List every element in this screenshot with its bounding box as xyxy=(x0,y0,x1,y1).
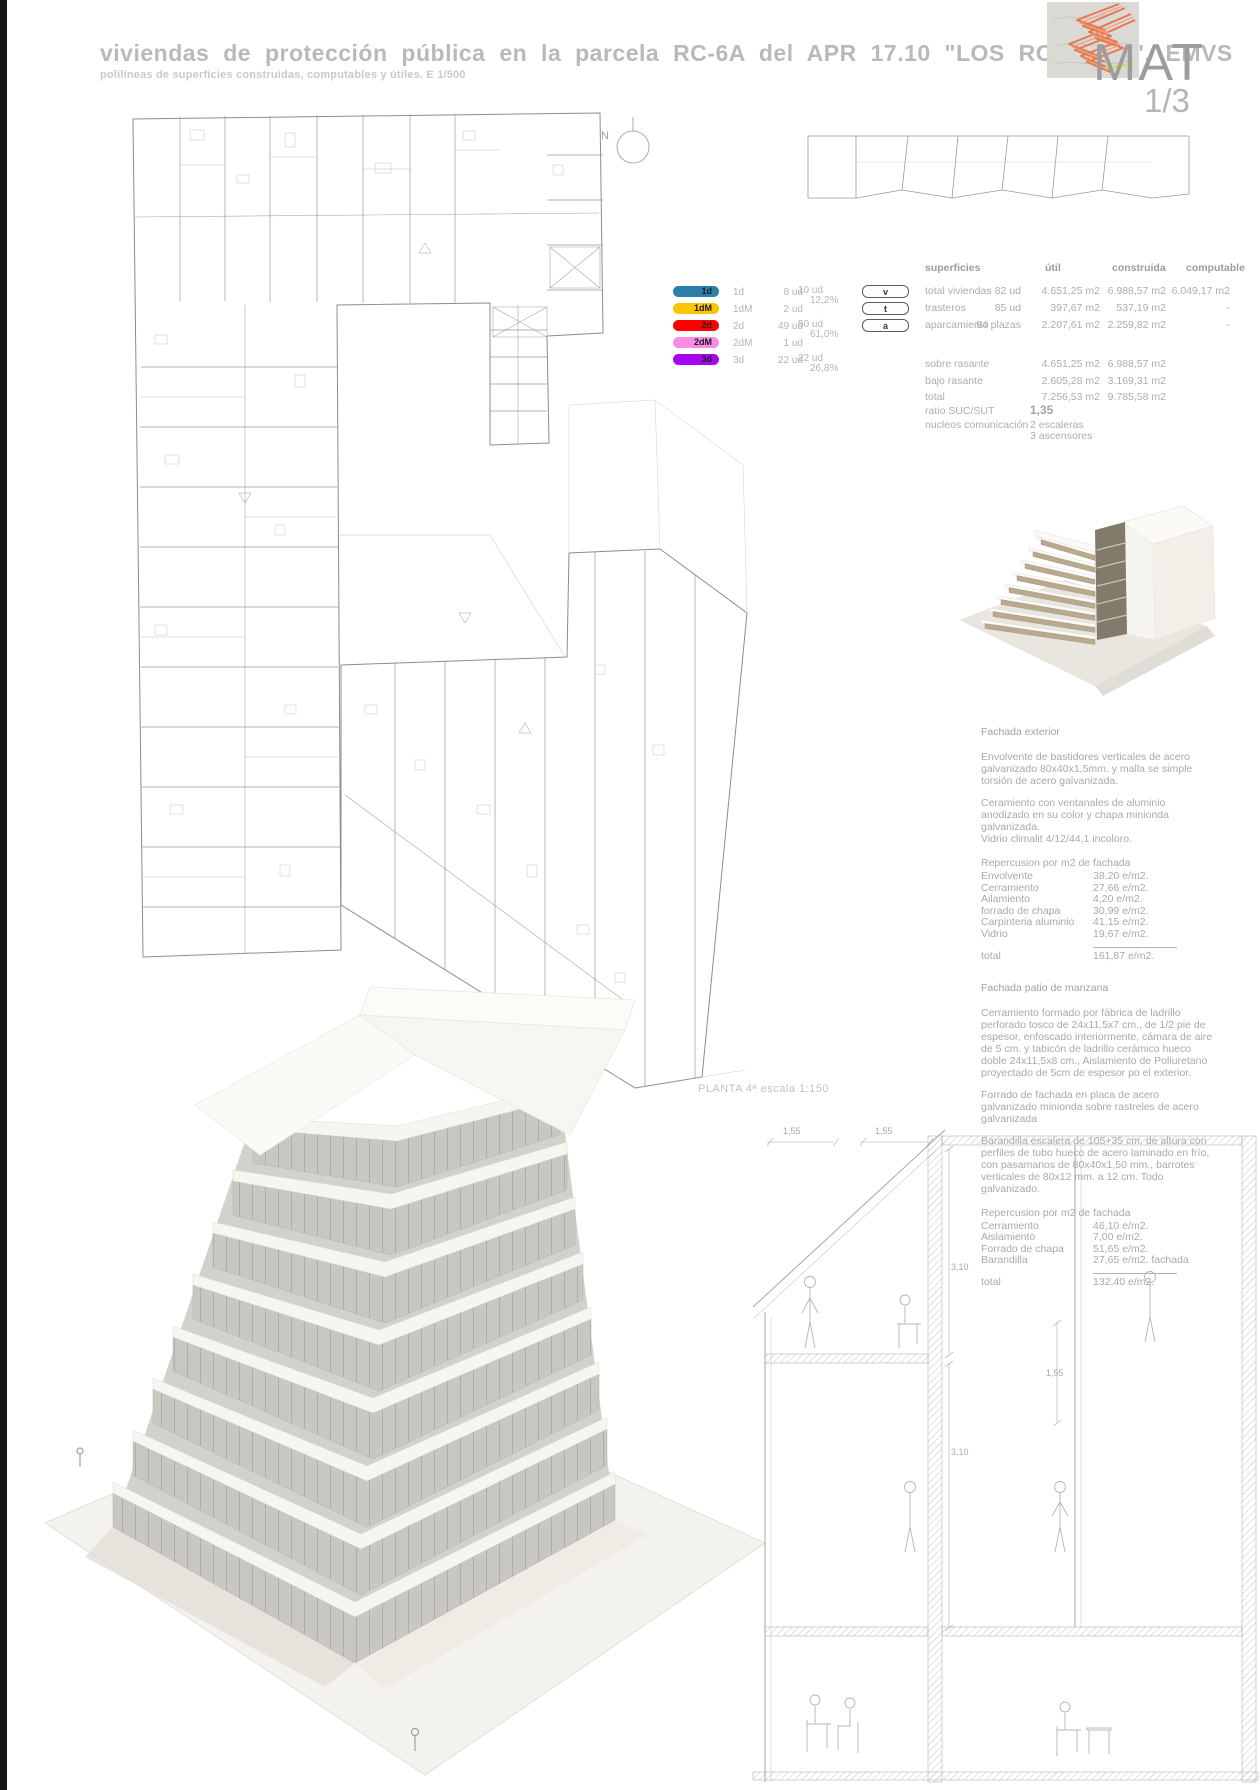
cost-row: Envolvente38,20 e/m2. xyxy=(981,871,1215,883)
row-built: 537,19 m2 xyxy=(1102,302,1166,314)
paragraph: Cerramiento formado por fábrica de ladri… xyxy=(981,1007,1215,1079)
summary-label: total xyxy=(925,391,945,403)
color-swatch-1dM: 1dM xyxy=(673,303,719,314)
sheet-number: 1/3 xyxy=(1144,82,1190,120)
dim-label: 1,55 xyxy=(1046,1368,1064,1378)
summary-built: 3.169,31 m2 xyxy=(1102,375,1166,387)
dim-label: 1,55 xyxy=(783,1126,801,1136)
model-photo-large xyxy=(25,975,825,1785)
total-row: total161,87 e/m2. xyxy=(981,950,1215,962)
legend-code: 2dM xyxy=(733,338,752,349)
row-comp: - xyxy=(1166,319,1230,331)
key-aparcamiento: a xyxy=(862,319,909,332)
paragraph: Forrado de fachada en placa de acero gal… xyxy=(981,1089,1215,1125)
key-trasteros: t xyxy=(862,302,909,315)
section-title: Fachada exterior xyxy=(981,726,1215,738)
costs-title: Repercusion por m2 de fachada xyxy=(981,857,1215,869)
legend-code: 2d xyxy=(733,321,744,332)
row-util: 397,67 m2 xyxy=(1024,302,1100,314)
color-swatch-3d: 3d xyxy=(673,354,719,365)
dim-label: 3,10 xyxy=(951,1447,969,1457)
row-qty: 85 ud xyxy=(955,302,1021,314)
summary-built: 6.988,57 m2 xyxy=(1102,358,1166,370)
row-qty: 94 plazas xyxy=(955,319,1021,331)
page-title: viviendas de protección pública en la pa… xyxy=(100,40,1050,67)
summary-util: 7.256,53 m2 xyxy=(1024,391,1100,403)
model-photo-small xyxy=(945,468,1220,718)
cores-value-2: 3 ascensores xyxy=(1030,430,1092,442)
legend-group-3d: 22 ud26,8% xyxy=(798,354,868,374)
cost-row: Vidrio19,67 e/m2. xyxy=(981,929,1215,941)
page-subtitle: polilíneas de superficies construidas, c… xyxy=(100,69,466,81)
paragraph: Vidrio climalit 4/12/44,1 incoloro. xyxy=(981,833,1215,845)
board-left-edge xyxy=(0,0,7,1790)
dim-label: 3,10 xyxy=(951,1262,969,1272)
summary-label: bajo rasante xyxy=(925,375,983,387)
ratio-label: ratio SUC/SUT xyxy=(925,405,994,417)
legend-group-1d: 10 ud12,2% xyxy=(798,286,868,306)
col-header-computable: computable xyxy=(1186,262,1245,274)
cores-label: nucleos comunicación xyxy=(925,419,1028,431)
color-swatch-2dM: 2dM xyxy=(673,337,719,348)
summary-built: 9.785,58 m2 xyxy=(1102,391,1166,403)
north-arrow-icon: N xyxy=(601,117,649,163)
row-util: 4.651,25 m2 xyxy=(1024,285,1100,297)
col-header-util: útil xyxy=(1045,262,1061,274)
col-header-construida: construida xyxy=(1112,262,1166,274)
section-drawing xyxy=(745,1122,1260,1790)
legend-units: 49 ud xyxy=(761,321,803,332)
legend-code: 1dM xyxy=(733,304,752,315)
col-header-superficies: superficies xyxy=(925,262,980,274)
plan-furniture xyxy=(155,130,664,982)
row-built: 6.988,57 m2 xyxy=(1102,285,1166,297)
legend-units: 2 ud xyxy=(761,304,803,315)
legend-code: 3d xyxy=(733,355,744,366)
floor-plan-drawing: N xyxy=(95,105,755,1105)
row-comp: 6.049,17 m2 xyxy=(1166,285,1230,297)
key-viviendas: v xyxy=(862,285,909,298)
color-swatch-1d: 1d xyxy=(673,286,719,297)
summary-label: sobre rasante xyxy=(925,358,989,370)
human-figure-sketches xyxy=(802,1272,1156,1757)
ratio-value: 1,35 xyxy=(1030,403,1053,417)
presentation-board: viviendas de protección pública en la pa… xyxy=(0,0,1260,1790)
summary-util: 2.605,28 m2 xyxy=(1024,375,1100,387)
row-util: 2.207,61 m2 xyxy=(1024,319,1100,331)
row-comp: - xyxy=(1166,302,1230,314)
paragraph: Envolvente de bastidores verticales de a… xyxy=(981,751,1215,787)
facade-exterior-section: Fachada exterior Envolvente de bastidore… xyxy=(981,726,1215,962)
section-title: Fachada patio de manzana xyxy=(981,982,1215,994)
summary-util: 4.651,25 m2 xyxy=(1024,358,1100,370)
unit-type-legend: 1d 1d 8 ud 1dM 1dM 2 ud 2d 2d 49 ud 2dM … xyxy=(673,286,808,371)
category-keys: v t a xyxy=(862,285,909,335)
legend-units: 8 ud xyxy=(761,287,803,298)
dim-label: 1,55 xyxy=(875,1126,893,1136)
legend-units: 22 ud xyxy=(761,355,803,366)
total-divider xyxy=(1093,947,1177,948)
paragraph: Ceramiento con ventanales de aluminio an… xyxy=(981,797,1215,833)
legend-code: 1d xyxy=(733,287,744,298)
color-swatch-2d: 2d xyxy=(673,320,719,331)
svg-text:N: N xyxy=(601,130,609,142)
row-qty: 82 ud xyxy=(955,285,1021,297)
roof-elevation-drawing xyxy=(806,128,1191,220)
legend-units: 1 ud xyxy=(761,338,803,349)
legend-group-2d: 50 ud61,0% xyxy=(798,320,868,340)
row-built: 2.259,82 m2 xyxy=(1102,319,1166,331)
